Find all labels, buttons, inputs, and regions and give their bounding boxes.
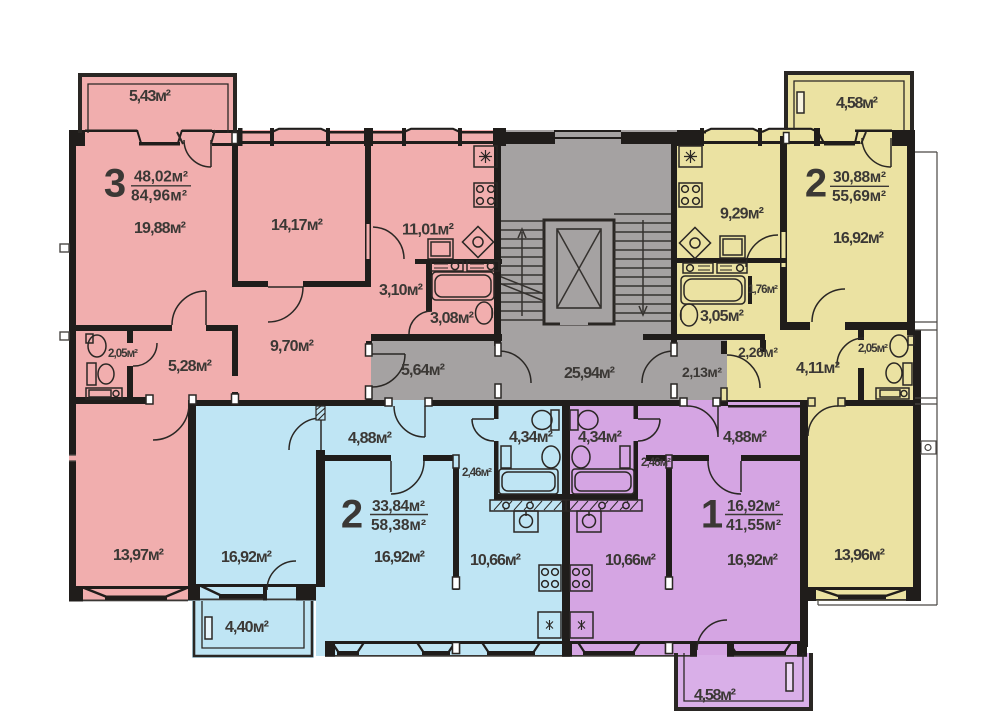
svg-text:3: 3 [104,162,126,206]
svg-text:84,96м²: 84,96м² [131,188,187,205]
svg-text:2,13м²: 2,13м² [682,364,722,380]
svg-text:58,38м²: 58,38м² [371,517,426,534]
svg-text:16,92м²: 16,92м² [833,230,884,247]
svg-text:2: 2 [805,162,827,206]
svg-text:4,58м²: 4,58м² [694,687,736,704]
svg-text:11,01м²: 11,01м² [402,222,454,239]
svg-text:4,40м²: 4,40м² [225,619,269,636]
svg-text:4,34м²: 4,34м² [578,429,622,446]
svg-text:9,29м²: 9,29м² [720,206,764,223]
svg-text:3,10м²: 3,10м² [379,282,423,299]
svg-text:4,11м²: 4,11м² [796,360,840,377]
svg-text:25,94м²: 25,94м² [564,365,615,382]
svg-text:33,84м²: 33,84м² [372,498,425,515]
svg-text:2,05м²: 2,05м² [108,348,138,360]
svg-text:16,92м²: 16,92м² [221,549,272,566]
svg-text:5,43м²: 5,43м² [129,88,171,105]
svg-text:16,92м²: 16,92м² [374,549,425,566]
svg-text:13,97м²: 13,97м² [113,547,164,564]
svg-text:13,96м²: 13,96м² [834,547,885,564]
svg-text:1: 1 [701,493,723,537]
svg-text:4,34м²: 4,34м² [509,429,553,446]
svg-text:9,70м²: 9,70м² [270,338,314,355]
svg-text:2,26м²: 2,26м² [738,344,778,360]
svg-text:48,02м²: 48,02м² [134,169,188,186]
svg-text:5,64м²: 5,64м² [401,362,445,379]
svg-text:2,46м²: 2,46м² [641,457,671,469]
svg-text:1,76м²: 1,76м² [748,284,778,296]
svg-text:2,05м²: 2,05м² [858,343,888,355]
svg-text:30,88м²: 30,88м² [833,169,886,186]
svg-text:16,92м²: 16,92м² [727,552,778,569]
svg-text:3,08м²: 3,08м² [430,310,474,327]
svg-text:16,92м²: 16,92м² [727,498,780,515]
svg-text:4,88м²: 4,88м² [723,429,767,446]
svg-text:55,69м²: 55,69м² [832,188,886,205]
svg-text:14,17м²: 14,17м² [271,217,323,234]
svg-text:19,88м²: 19,88м² [134,220,186,237]
svg-text:4,88м²: 4,88м² [348,430,392,447]
svg-text:41,55м²: 41,55м² [726,517,781,534]
svg-text:4,58м²: 4,58м² [836,95,878,112]
svg-text:2: 2 [341,493,363,537]
svg-text:10,66м²: 10,66м² [605,552,656,569]
svg-text:5,28м²: 5,28м² [168,358,212,375]
svg-text:10,66м²: 10,66м² [470,552,521,569]
svg-text:2,46м²: 2,46м² [462,467,492,479]
svg-text:3,05м²: 3,05м² [700,308,744,325]
